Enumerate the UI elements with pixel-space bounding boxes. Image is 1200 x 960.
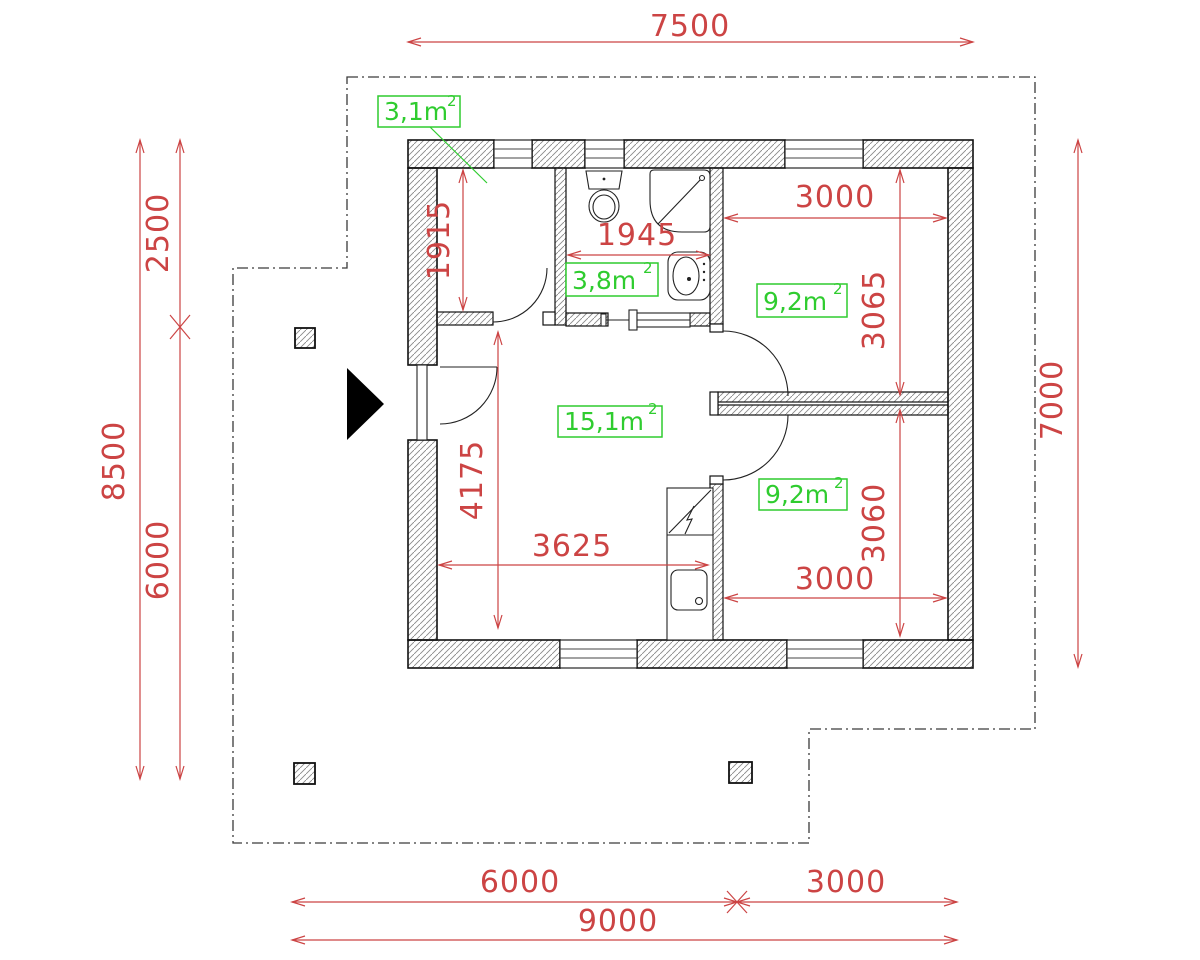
terrace-post-bottom-right	[729, 762, 752, 783]
dim-top-width: 7500	[650, 9, 730, 44]
terrace-boundary-outline	[233, 77, 1035, 843]
dim-living-width: 3625	[532, 529, 612, 564]
dim-living-height: 4175	[455, 440, 490, 520]
svg-text:3,8m: 3,8m	[572, 266, 636, 295]
terrace-post-bottom-left	[294, 763, 315, 784]
svg-text:2: 2	[833, 280, 843, 298]
dim-bedroom2-height: 3060	[857, 483, 892, 563]
washbasin-icon	[668, 252, 710, 300]
floor-plan-page: 7500 8500 2500 6000 7000 6000 3000 9000 …	[0, 0, 1200, 960]
svg-text:2: 2	[643, 259, 653, 277]
dim-right-height: 7000	[1035, 360, 1070, 440]
toilet-icon	[586, 171, 622, 222]
exterior-wall-right	[948, 168, 973, 640]
svg-text:9,2m: 9,2m	[763, 287, 827, 316]
dim-bottom-right: 3000	[806, 865, 886, 900]
svg-text:2: 2	[447, 92, 457, 110]
svg-text:2: 2	[834, 474, 844, 492]
dim-left-total: 8500	[97, 421, 132, 501]
area-label-bedroom-1: 9,2m 2	[757, 280, 847, 317]
dim-bottom-left: 6000	[480, 865, 560, 900]
dim-bathroom-width: 1945	[597, 218, 677, 253]
terrace-post-top-left	[295, 328, 315, 348]
exterior-wall-top	[408, 140, 973, 168]
dim-bedroom1-width: 3000	[795, 180, 875, 215]
entrance-arrow-icon	[347, 368, 384, 440]
dim-bedroom1-height: 3065	[857, 270, 892, 350]
dim-left-lower: 6000	[141, 520, 176, 600]
sliding-door-bathroom	[601, 310, 690, 330]
area-label-bedroom-2: 9,2m 2	[759, 474, 847, 510]
svg-text:2: 2	[648, 400, 658, 418]
dim-bedroom2-width: 3000	[795, 562, 875, 597]
exterior-wall-bottom	[408, 640, 973, 668]
floor-plan-canvas: 7500 8500 2500 6000 7000 6000 3000 9000 …	[0, 0, 1200, 960]
area-label-bathroom: 3,8m 2	[566, 259, 658, 296]
svg-text:15,1m: 15,1m	[564, 407, 644, 436]
kitchen-counter	[667, 488, 713, 640]
dim-storage-height: 1915	[422, 200, 457, 280]
dim-bottom-total: 9000	[578, 904, 658, 939]
dim-left-upper: 2500	[141, 193, 176, 273]
svg-text:3,1m: 3,1m	[384, 97, 448, 126]
svg-text:9,2m: 9,2m	[765, 480, 829, 509]
area-label-living: 15,1m 2	[558, 400, 662, 437]
